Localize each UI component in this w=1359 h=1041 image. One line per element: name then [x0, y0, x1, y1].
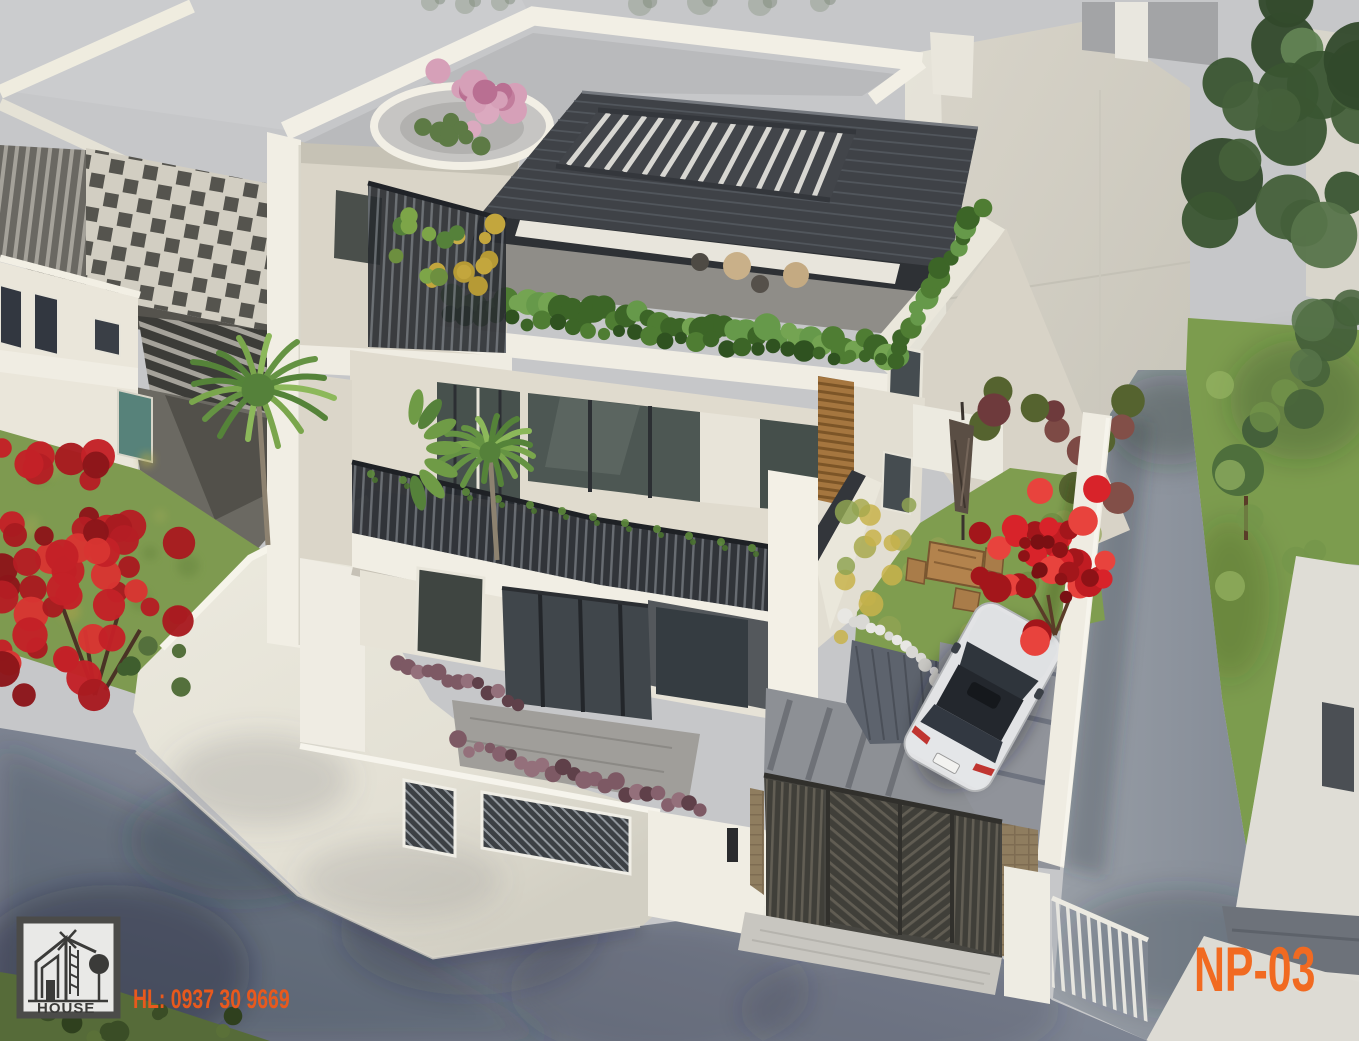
svg-text:HL: 0937 30 9669: HL: 0937 30 9669: [133, 984, 290, 1014]
svg-text:NP-03: NP-03: [1194, 935, 1315, 1005]
svg-text:HOUSE: HOUSE: [37, 1000, 95, 1017]
